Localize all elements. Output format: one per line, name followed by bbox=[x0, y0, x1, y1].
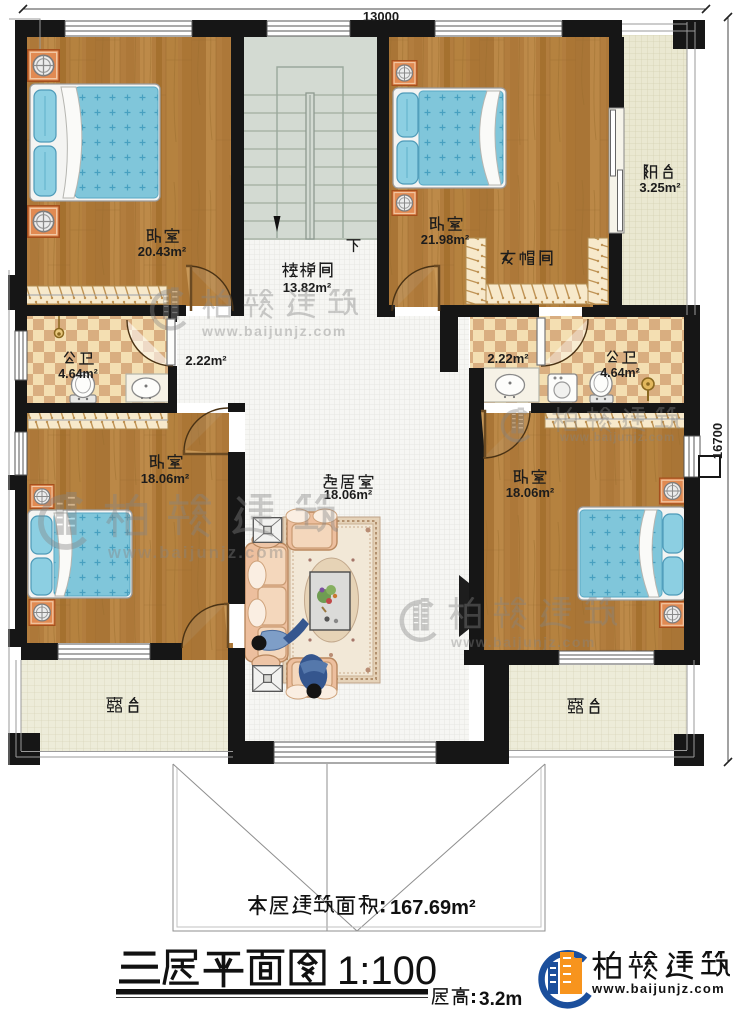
svg-text:18.06m²: 18.06m² bbox=[324, 487, 373, 502]
svg-text:13000: 13000 bbox=[363, 9, 399, 24]
svg-text:2.22m²: 2.22m² bbox=[185, 353, 227, 368]
svg-text:2.22m²: 2.22m² bbox=[487, 351, 529, 366]
svg-text:18.06m²: 18.06m² bbox=[141, 471, 190, 486]
svg-text:4.64m²: 4.64m² bbox=[58, 367, 98, 381]
svg-text:www.baijunjz.com: www.baijunjz.com bbox=[591, 981, 725, 996]
svg-text:20.43m²: 20.43m² bbox=[138, 244, 187, 259]
svg-text:3.2m: 3.2m bbox=[479, 989, 522, 1010]
svg-text:16700: 16700 bbox=[710, 423, 725, 459]
svg-text:1:100: 1:100 bbox=[337, 949, 437, 993]
svg-text:3.25m²: 3.25m² bbox=[639, 180, 681, 195]
svg-text:www.baijunjz.com: www.baijunjz.com bbox=[107, 544, 286, 562]
svg-text:18.06m²: 18.06m² bbox=[506, 485, 555, 500]
svg-text:www.baijunjz.com: www.baijunjz.com bbox=[559, 432, 675, 444]
svg-text:167.69m²: 167.69m² bbox=[390, 897, 476, 919]
svg-text:4.64m²: 4.64m² bbox=[600, 366, 640, 380]
svg-text:21.98m²: 21.98m² bbox=[421, 232, 470, 247]
svg-text:www.baijunjz.com: www.baijunjz.com bbox=[201, 323, 347, 339]
svg-text:www.baijunjz.com: www.baijunjz.com bbox=[450, 634, 596, 650]
